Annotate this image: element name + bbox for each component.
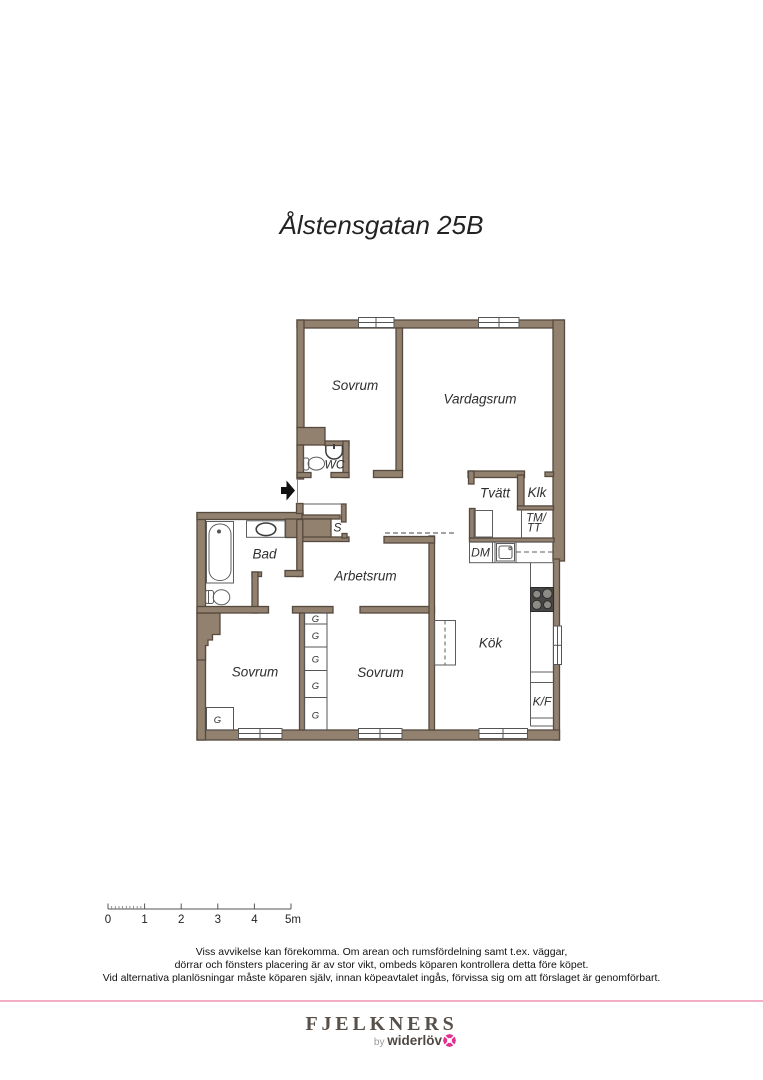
svg-text:G: G bbox=[312, 711, 319, 722]
svg-text:G: G bbox=[312, 681, 319, 692]
svg-text:G: G bbox=[214, 715, 221, 726]
svg-text:G: G bbox=[312, 655, 319, 666]
svg-text:4: 4 bbox=[251, 914, 258, 926]
svg-text:0: 0 bbox=[105, 914, 111, 926]
svg-text:Sovrum: Sovrum bbox=[332, 378, 379, 393]
svg-text:K/F: K/F bbox=[533, 695, 552, 709]
svg-text:G: G bbox=[312, 614, 319, 625]
svg-text:S: S bbox=[333, 521, 341, 535]
svg-text:TT: TT bbox=[527, 523, 542, 535]
svg-text:Kök: Kök bbox=[479, 636, 504, 651]
svg-text:DM: DM bbox=[471, 546, 490, 560]
svg-text:1: 1 bbox=[141, 914, 147, 926]
svg-text:Vardagsrum: Vardagsrum bbox=[443, 392, 516, 407]
svg-text:Tvätt: Tvätt bbox=[480, 486, 511, 501]
svg-text:WC: WC bbox=[325, 458, 345, 472]
svg-text:Klk: Klk bbox=[528, 485, 548, 500]
svg-text:Arbetsrum: Arbetsrum bbox=[333, 569, 396, 584]
svg-text:5m: 5m bbox=[285, 914, 301, 926]
svg-text:2: 2 bbox=[178, 914, 184, 926]
svg-text:Sovrum: Sovrum bbox=[357, 665, 404, 680]
svg-text:3: 3 bbox=[215, 914, 221, 926]
svg-text:G: G bbox=[312, 631, 319, 642]
svg-text:Bad: Bad bbox=[252, 547, 277, 562]
svg-text:Sovrum: Sovrum bbox=[232, 665, 279, 680]
